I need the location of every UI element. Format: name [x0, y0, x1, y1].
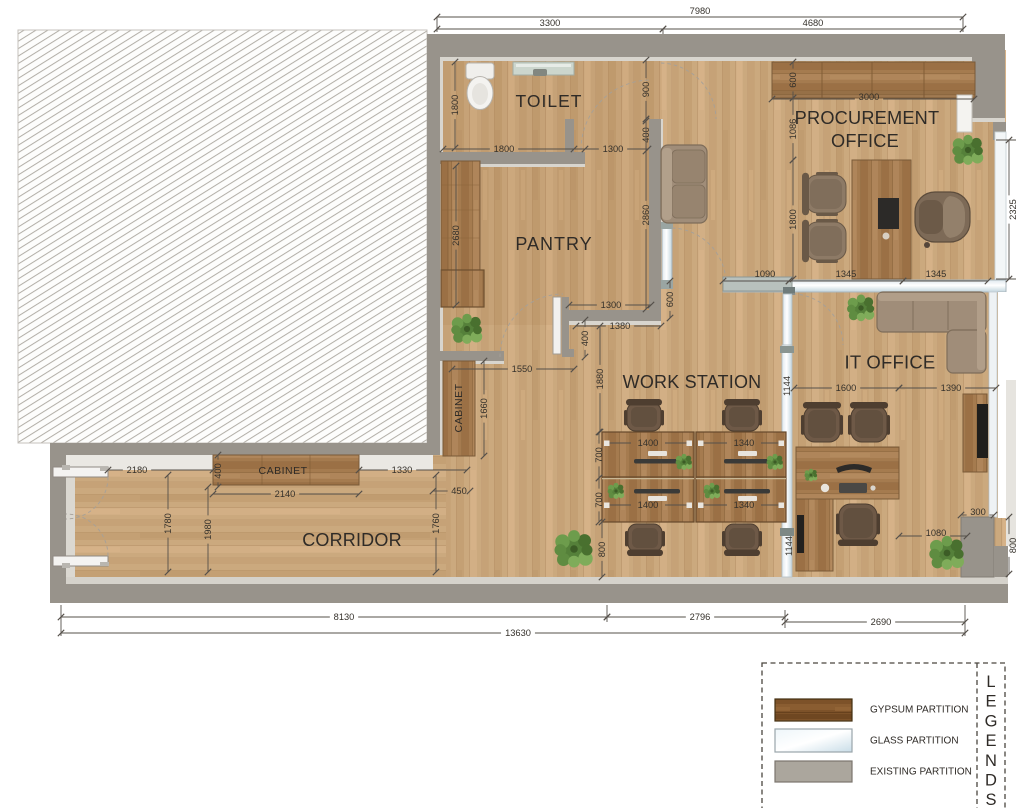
svg-text:2325: 2325 [1008, 199, 1018, 220]
svg-text:400: 400 [580, 331, 590, 347]
svg-text:700: 700 [594, 447, 604, 463]
svg-text:1400: 1400 [638, 438, 659, 448]
svg-text:1800: 1800 [494, 144, 515, 154]
svg-text:1144: 1144 [784, 536, 794, 556]
svg-text:1600: 1600 [836, 383, 857, 393]
svg-text:1760: 1760 [431, 513, 441, 534]
svg-text:N: N [985, 752, 997, 770]
svg-text:E: E [985, 732, 996, 750]
svg-text:D: D [985, 772, 997, 790]
svg-text:1380: 1380 [610, 321, 631, 331]
svg-text:WORK STATION: WORK STATION [623, 372, 762, 392]
svg-text:CABINET: CABINET [453, 383, 465, 432]
svg-text:PANTRY: PANTRY [515, 234, 592, 254]
svg-text:2140: 2140 [275, 489, 296, 499]
svg-text:G: G [985, 712, 998, 730]
svg-text:1550: 1550 [512, 364, 533, 374]
svg-text:CABINET: CABINET [258, 465, 307, 477]
svg-text:1144: 1144 [782, 376, 792, 396]
svg-text:1880: 1880 [595, 369, 605, 390]
svg-text:2690: 2690 [871, 617, 892, 627]
svg-text:4680: 4680 [803, 18, 824, 28]
svg-text:1345: 1345 [926, 269, 947, 279]
svg-text:TOILET: TOILET [516, 91, 583, 111]
svg-text:2796: 2796 [690, 612, 711, 622]
svg-text:1080: 1080 [926, 528, 947, 538]
svg-text:S: S [985, 791, 996, 808]
svg-text:450: 450 [451, 486, 467, 496]
svg-text:1660: 1660 [479, 398, 489, 419]
svg-text:PROCUREMENT: PROCUREMENT [795, 108, 940, 128]
svg-text:CORRIDOR: CORRIDOR [302, 530, 402, 550]
svg-text:8130: 8130 [334, 612, 355, 622]
svg-text:900: 900 [641, 82, 651, 98]
svg-text:1340: 1340 [734, 438, 755, 448]
svg-text:3000: 3000 [859, 92, 880, 102]
svg-text:1090: 1090 [755, 269, 776, 279]
svg-text:1330: 1330 [392, 465, 413, 475]
svg-text:2860: 2860 [641, 205, 651, 226]
svg-text:1300: 1300 [603, 144, 624, 154]
svg-text:1780: 1780 [163, 513, 173, 534]
svg-text:700: 700 [594, 492, 604, 508]
svg-text:EXISTING PARTITION: EXISTING PARTITION [870, 767, 972, 778]
svg-text:1340: 1340 [734, 500, 755, 510]
svg-text:1086: 1086 [788, 119, 798, 140]
svg-text:L: L [986, 673, 995, 691]
svg-text:GLASS PARTITION: GLASS PARTITION [870, 736, 959, 747]
svg-text:1390: 1390 [941, 383, 962, 393]
svg-text:600: 600 [665, 292, 675, 308]
svg-text:1800: 1800 [788, 209, 798, 230]
svg-text:13630: 13630 [505, 628, 531, 638]
svg-text:E: E [985, 693, 996, 711]
svg-text:7980: 7980 [690, 6, 711, 16]
svg-text:600: 600 [788, 72, 798, 88]
svg-text:2180: 2180 [127, 465, 148, 475]
svg-text:IT OFFICE: IT OFFICE [845, 352, 936, 373]
svg-text:300: 300 [970, 507, 986, 517]
svg-text:800: 800 [597, 542, 607, 558]
svg-text:1345: 1345 [836, 269, 857, 279]
svg-text:1400: 1400 [638, 500, 659, 510]
svg-text:2680: 2680 [451, 225, 461, 246]
svg-text:3300: 3300 [540, 18, 561, 28]
svg-text:OFFICE: OFFICE [831, 131, 899, 151]
svg-text:800: 800 [1008, 538, 1018, 554]
svg-text:GYPSUM PARTITION: GYPSUM PARTITION [870, 705, 969, 716]
svg-text:1980: 1980 [203, 519, 213, 540]
svg-text:400: 400 [213, 463, 223, 479]
svg-text:1800: 1800 [450, 95, 460, 116]
svg-text:1300: 1300 [601, 300, 622, 310]
